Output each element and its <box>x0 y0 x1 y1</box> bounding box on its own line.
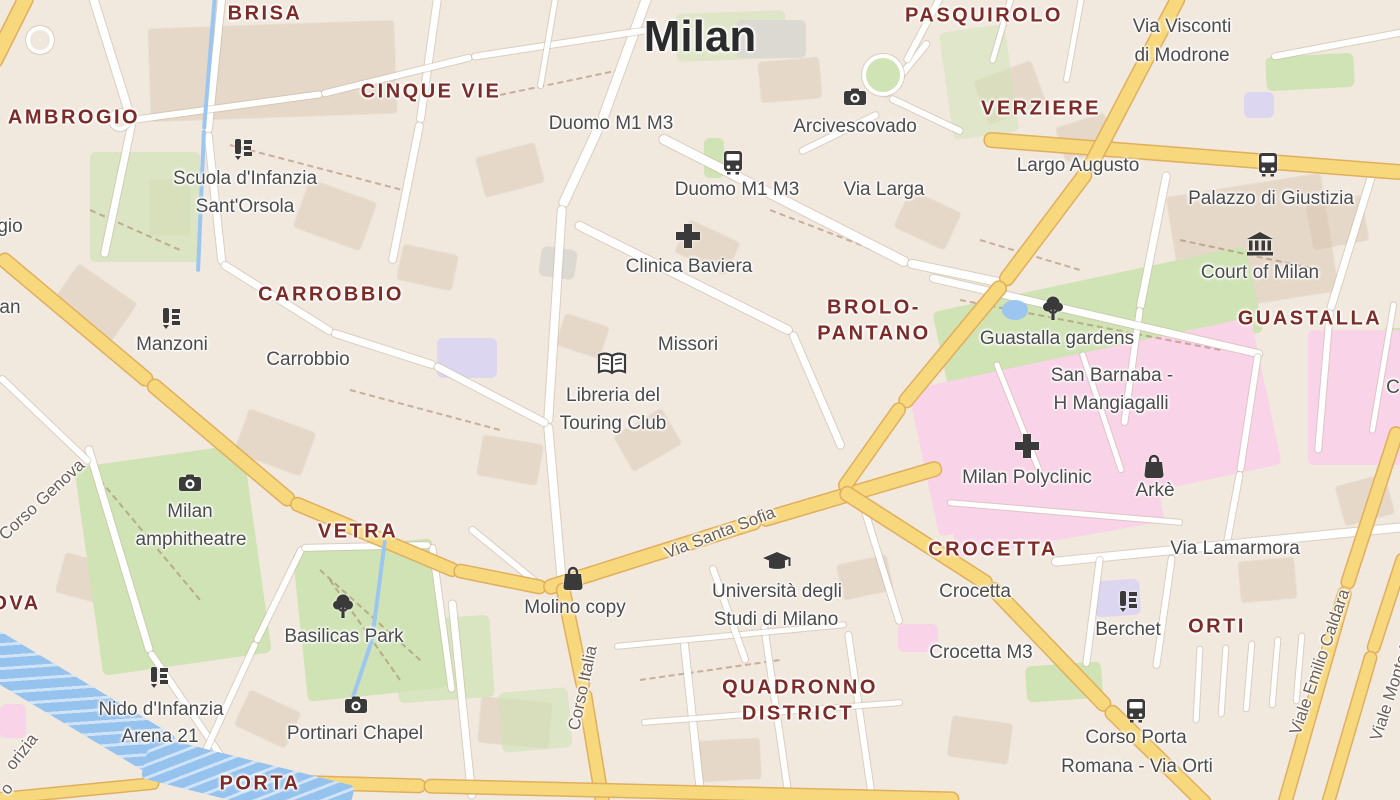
poi-label-studi-di-milano: Studi di Milano <box>714 609 839 631</box>
poi-label-c: C <box>1386 377 1400 399</box>
road-label-corso-italia: Corso Italia <box>564 644 601 732</box>
district-label-verziere: VERZIERE <box>981 98 1101 121</box>
poi-label-di-modrone: di Modrone <box>1134 45 1229 67</box>
poi-label-via-visconti: Via Visconti <box>1133 16 1232 38</box>
poi-label-san-barnaba: San Barnaba - <box>1051 365 1174 387</box>
district-label-guastalla: GUASTALLA <box>1238 308 1382 331</box>
road-label-o: o <box>0 779 18 799</box>
poi-label-via-larga: Via Larga <box>844 179 925 201</box>
poi-label-molino-copy: Molino copy <box>524 597 625 619</box>
poi-label-scuola-d-infanzia: Scuola d'Infanzia <box>173 168 317 190</box>
poi-label-duomo-m1-m3: Duomo M1 M3 <box>675 179 800 201</box>
road-label-via-santa-sofia: Via Santa Sofia <box>662 503 778 564</box>
district-label-vetra: VETRA <box>318 521 398 544</box>
poi-label-portinari-chapel: Portinari Chapel <box>287 723 423 745</box>
poi-label-touring-club: Touring Club <box>560 413 667 435</box>
district-label-ova: OVA <box>0 593 41 616</box>
poi-label-crocetta-m3: Crocetta M3 <box>929 642 1032 664</box>
district-label-district: DISTRICT <box>742 703 854 726</box>
poi-label-ark: Arkè <box>1135 480 1174 502</box>
poi-label-court-of-milan: Court of Milan <box>1201 262 1319 284</box>
poi-label-amphitheatre: amphitheatre <box>136 529 247 551</box>
poi-label-universit-degli: Università degli <box>712 581 842 603</box>
district-label-pasquirolo: PASQUIROLO <box>905 5 1063 28</box>
poi-label-carrobbio: Carrobbio <box>266 349 349 371</box>
poi-label-libreria-del: Libreria del <box>566 385 660 407</box>
poi-label-milan: Milan <box>167 501 212 523</box>
poi-label-berchet: Berchet <box>1095 619 1160 641</box>
poi-label-corso-porta: Corso Porta <box>1085 727 1186 749</box>
road-label-orizia: orizia <box>2 730 43 774</box>
poi-label-via-lamarmora: Via Lamarmora <box>1170 538 1300 560</box>
district-label-quadronno: QUADRONNO <box>722 677 878 700</box>
map-canvas[interactable]: MilanBRISAPASQUIROLOCINQUE VIEAMBROGIOVE… <box>0 0 1400 800</box>
district-label-brisa: BRISA <box>228 3 303 26</box>
poi-label-palazzo-di-giustizia: Palazzo di Giustizia <box>1188 188 1354 210</box>
poi-label-sant-orsola: Sant'Orsola <box>196 196 295 218</box>
district-label-orti: ORTI <box>1188 616 1246 639</box>
poi-label-crocetta: Crocetta <box>939 581 1011 603</box>
poi-label-arcivescovado: Arcivescovado <box>793 116 917 138</box>
poi-label-nido-d-infanzia: Nido d'Infanzia <box>98 699 223 721</box>
poi-label-missori: Missori <box>658 334 718 356</box>
map-labels-layer: MilanBRISAPASQUIROLOCINQUE VIEAMBROGIOVE… <box>0 0 1400 800</box>
district-label-pantano: PANTANO <box>817 323 930 346</box>
road-label-viale-emilio-caldara: Viale Emilio Caldara <box>1286 587 1355 738</box>
district-label-brolo: BROLO- <box>827 297 921 320</box>
poi-label-guastalla-gardens: Guastalla gardens <box>980 328 1134 350</box>
poi-label-basilicas-park: Basilicas Park <box>284 626 403 648</box>
poi-label-milan-polyclinic: Milan Polyclinic <box>962 467 1092 489</box>
poi-label-arena-21: Arena 21 <box>121 726 198 748</box>
poi-label-duomo-m1-m3: Duomo M1 M3 <box>549 113 674 135</box>
poi-label-gio: gio <box>0 216 23 238</box>
poi-label-romana-via-orti: Romana - Via Orti <box>1061 756 1213 778</box>
poi-label-manzoni: Manzoni <box>136 334 208 356</box>
city-label-milan: Milan <box>644 12 756 62</box>
road-label-viale-monte-nero: Viale Monte Nero <box>1366 613 1400 744</box>
poi-label-an: an <box>0 297 21 319</box>
district-label-cinque-vie: CINQUE VIE <box>361 81 502 104</box>
district-label-carrobbio: CARROBBIO <box>258 284 404 307</box>
road-label-corso-genova: Corso Genova <box>0 455 89 544</box>
poi-label-largo-augusto: Largo Augusto <box>1017 155 1140 177</box>
district-label-porta: PORTA <box>219 773 300 796</box>
district-label-ambrogio: AMBROGIO <box>8 107 140 130</box>
district-label-crocetta: CROCETTA <box>928 539 1058 562</box>
poi-label-h-mangiagalli: H Mangiagalli <box>1053 393 1168 415</box>
poi-label-clinica-baviera: Clinica Baviera <box>626 256 753 278</box>
